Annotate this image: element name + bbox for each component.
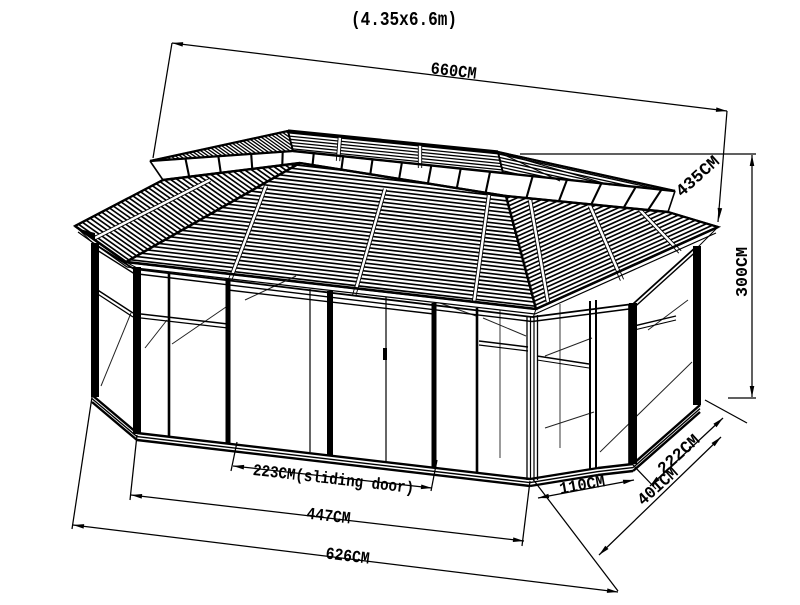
svg-text:300CM: 300CM [734,247,753,297]
svg-text:(4.35x6.6m): (4.35x6.6m) [351,9,457,31]
